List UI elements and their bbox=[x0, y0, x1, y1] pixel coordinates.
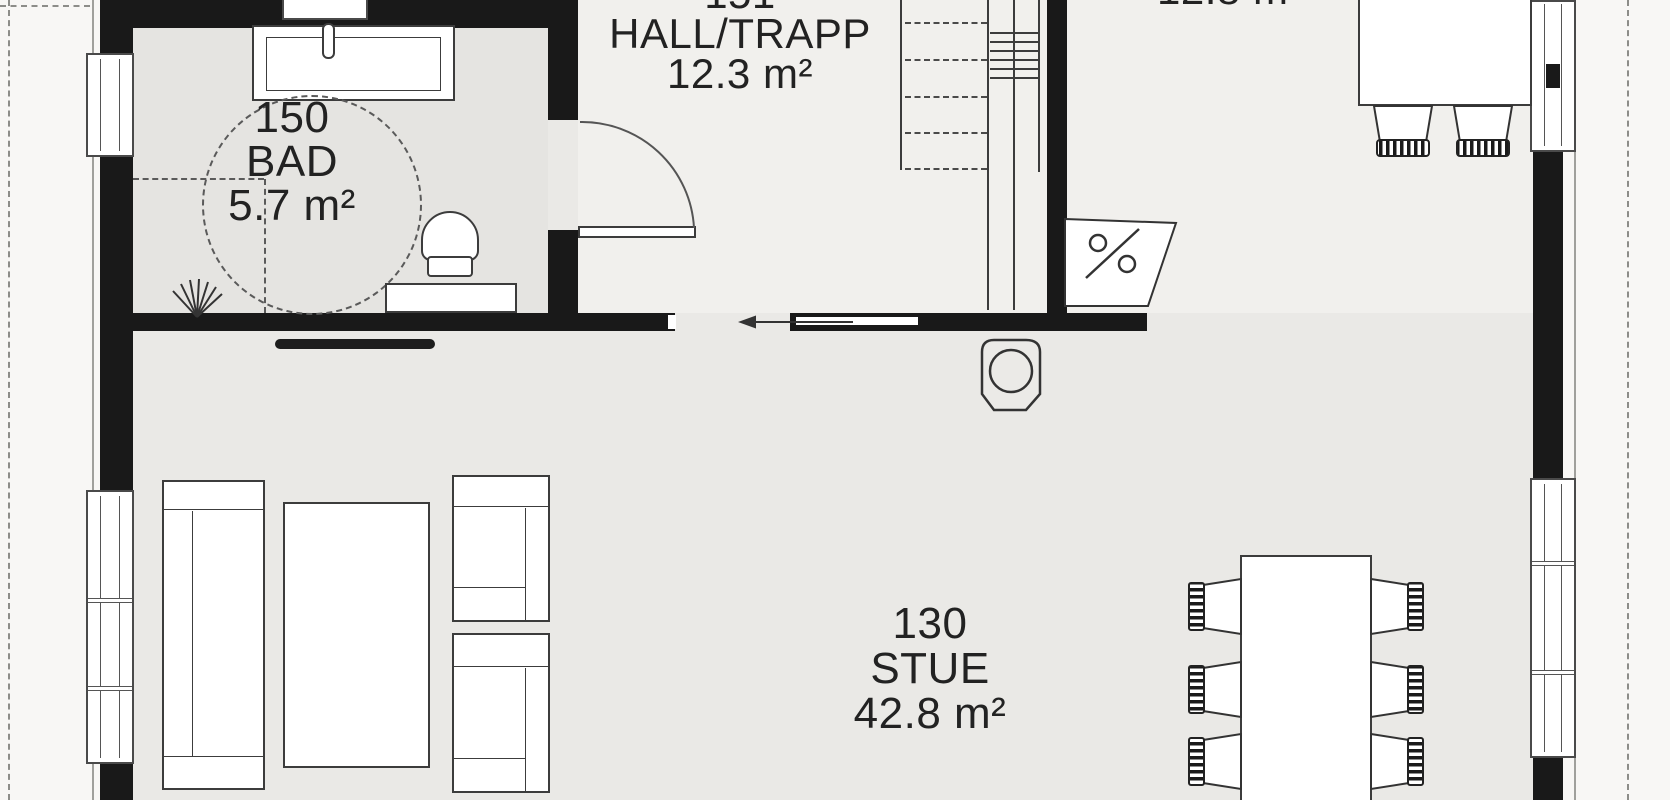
dining-chair bbox=[1189, 734, 1241, 789]
door-swing-arc bbox=[580, 122, 694, 228]
bar-stool bbox=[1374, 106, 1432, 156]
room-label-bad: 150 BAD 5.7 m² bbox=[192, 96, 392, 228]
dining-chair bbox=[1371, 662, 1423, 717]
room-number: 150 bbox=[192, 96, 392, 140]
floor-plan-canvas: 150 BAD 5.7 m² 151 HALL/TRAPP 12.3 m² 13… bbox=[0, 0, 1670, 800]
wood-stove-icon bbox=[982, 340, 1040, 410]
dining-chair bbox=[1371, 579, 1423, 634]
sliding-door-arrow bbox=[738, 316, 853, 329]
room-name: HALL/TRAPP bbox=[590, 14, 890, 54]
floor-drain-icon bbox=[173, 279, 222, 317]
room-area: 12.3 m² bbox=[590, 54, 890, 94]
bar-stool bbox=[1454, 106, 1512, 156]
dining-chair bbox=[1189, 662, 1241, 717]
room-area: 42.8 m² bbox=[830, 691, 1030, 736]
room-number: 130 bbox=[830, 601, 1030, 646]
room-name: STUE bbox=[830, 646, 1030, 691]
room-area: 5.7 m² bbox=[192, 184, 392, 228]
dishwasher-icon bbox=[1065, 219, 1176, 306]
room-label-kitchen: 12.8 m² bbox=[1130, 0, 1330, 10]
dining-chair bbox=[1371, 734, 1423, 789]
dining-chair bbox=[1189, 579, 1241, 634]
room-name: BAD bbox=[192, 140, 392, 184]
room-label-stue: 130 STUE 42.8 m² bbox=[830, 601, 1030, 736]
room-area: 12.8 m² bbox=[1130, 0, 1330, 10]
room-label-hall: 151 HALL/TRAPP 12.3 m² bbox=[590, 0, 890, 94]
